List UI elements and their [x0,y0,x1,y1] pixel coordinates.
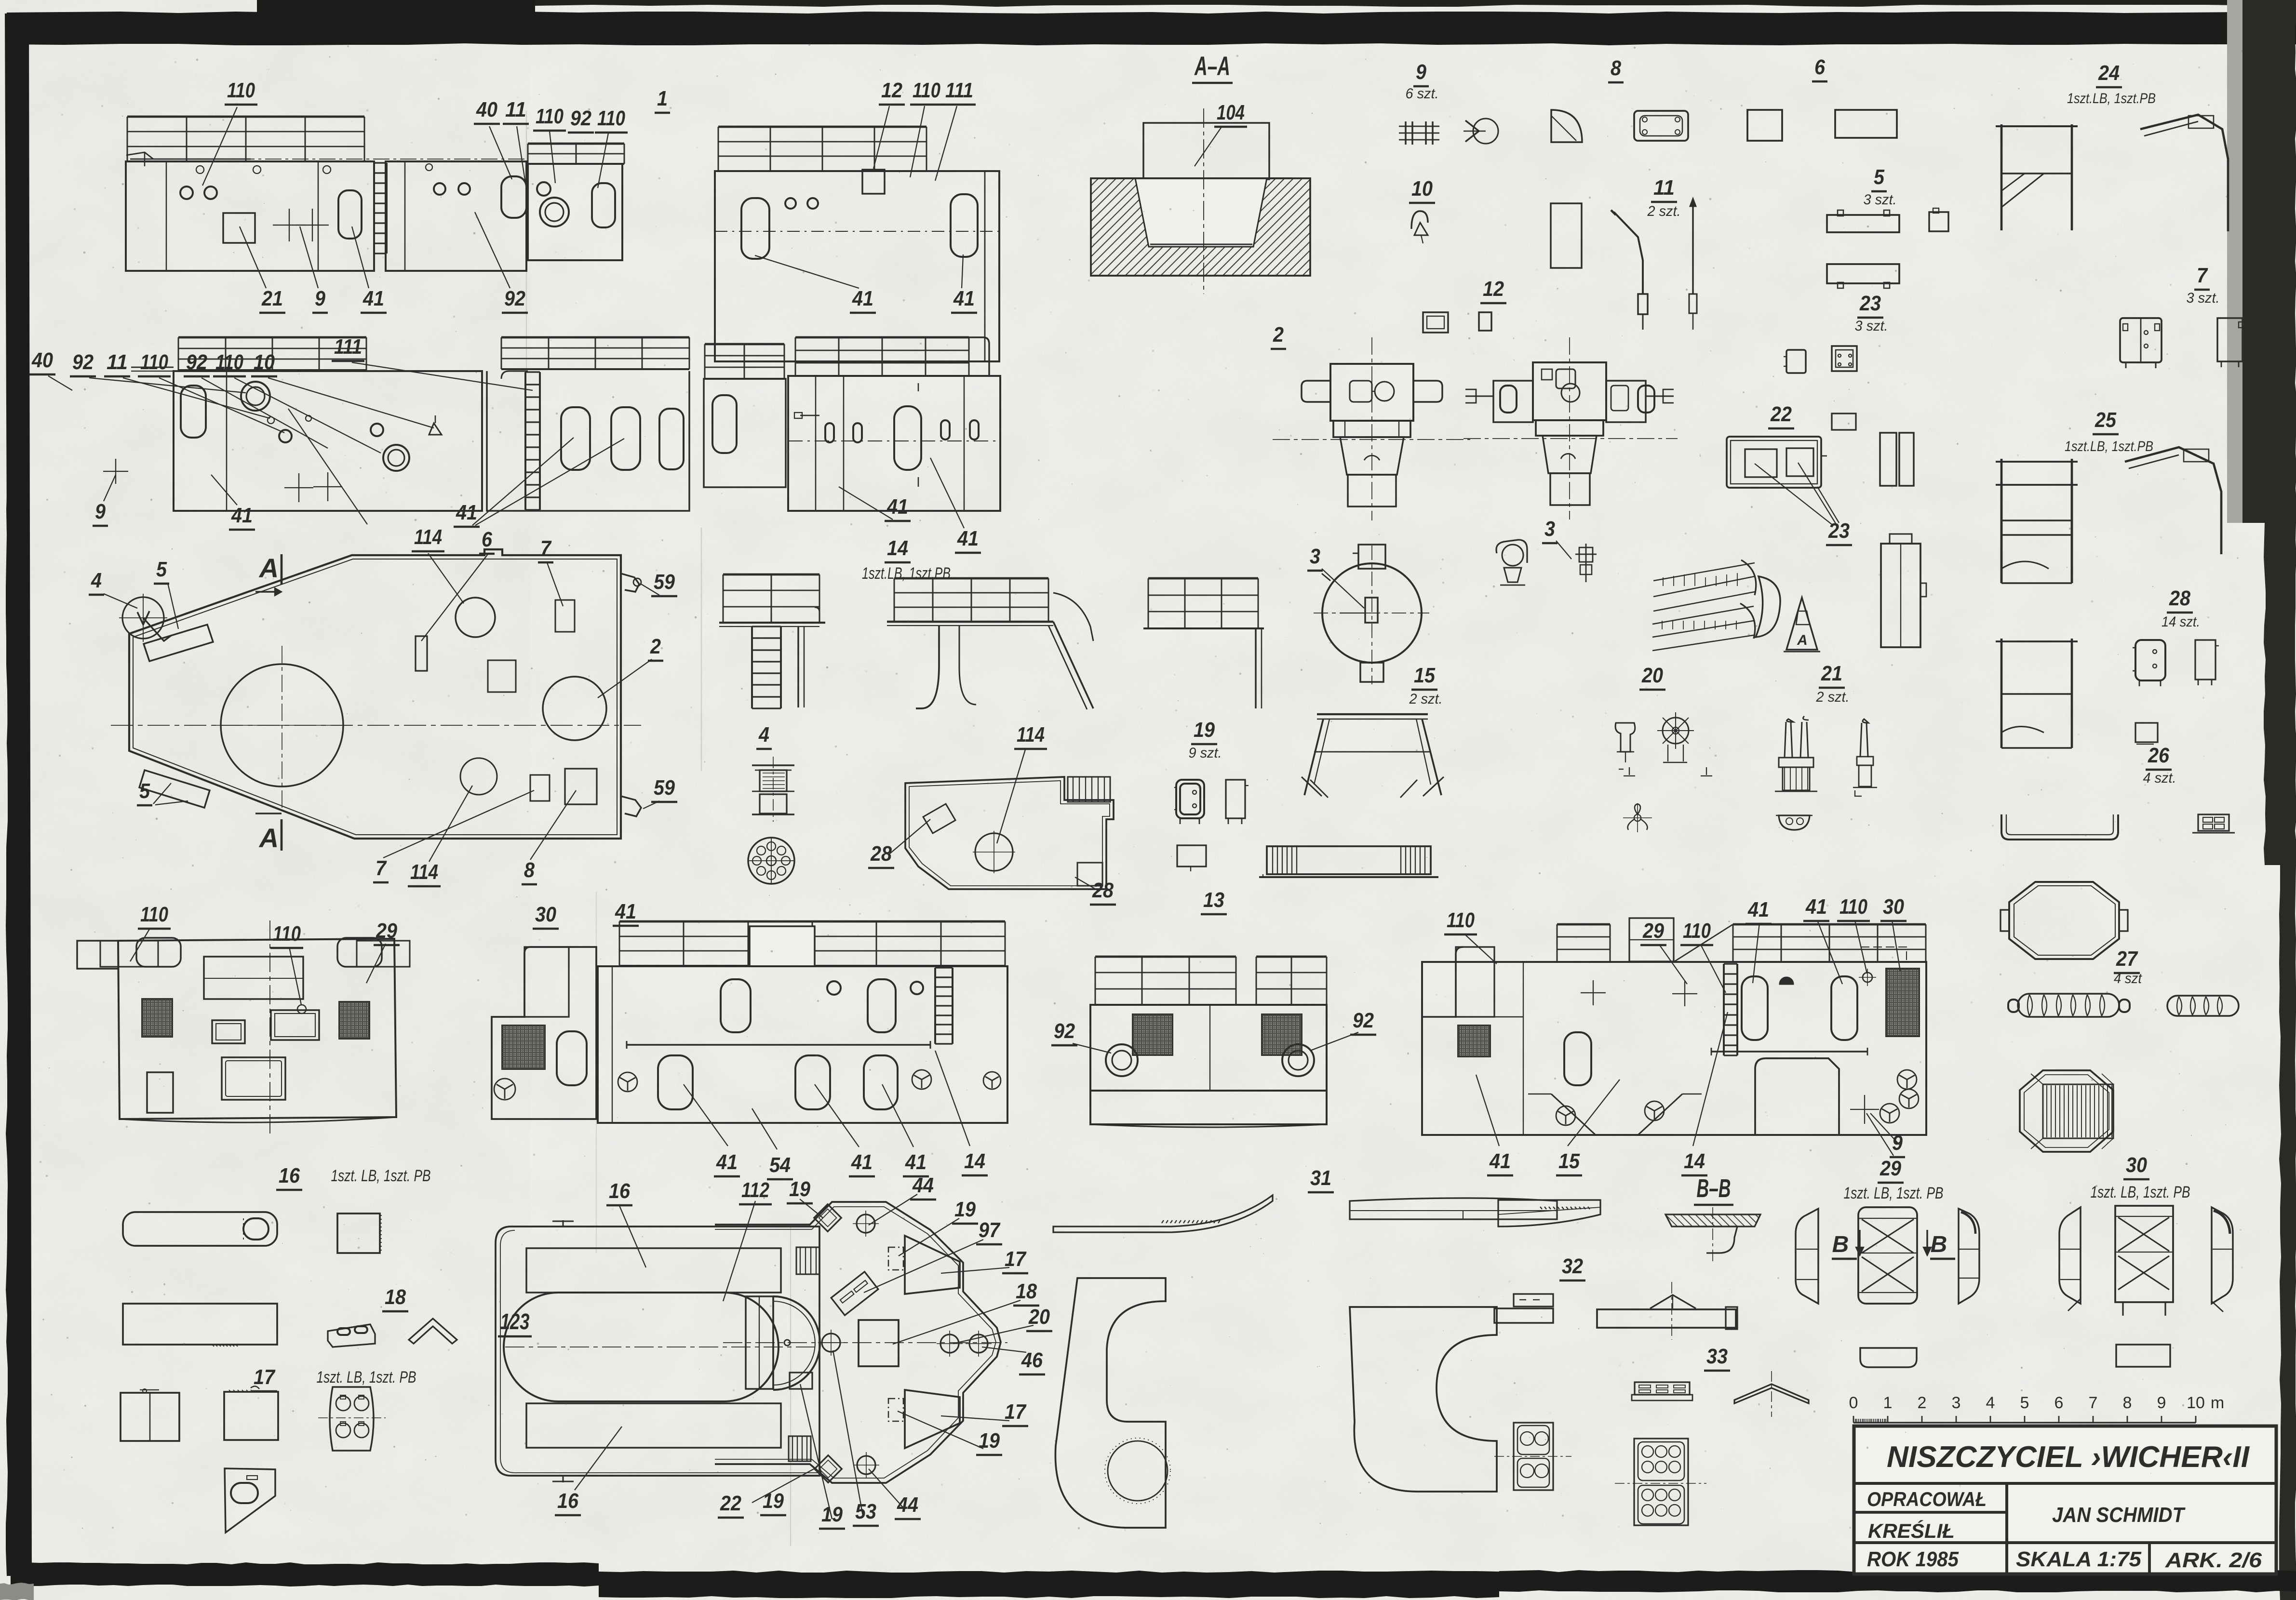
svg-text:110: 110 [913,79,940,102]
svg-text:A: A [258,823,279,853]
svg-text:6: 6 [482,528,492,551]
svg-text:A: A [1797,632,1808,648]
svg-text:8: 8 [1611,56,1621,80]
svg-text:24: 24 [2098,61,2120,85]
svg-text:7: 7 [2197,264,2208,287]
svg-text:59: 59 [654,776,675,800]
svg-text:1: 1 [1883,1394,1893,1412]
svg-text:41: 41 [852,287,873,310]
svg-text:41: 41 [905,1150,926,1174]
svg-text:NISZCZYCIEL ›WICHER‹II: NISZCZYCIEL ›WICHER‹II [1887,1440,2250,1474]
svg-text:9: 9 [315,287,325,310]
svg-text:1szt. LB, 1szt. PB: 1szt. LB, 1szt. PB [317,1368,416,1387]
svg-text:OPRACOWAŁ: OPRACOWAŁ [1867,1488,1987,1510]
svg-text:92: 92 [1353,1009,1374,1032]
svg-text:28: 28 [870,842,892,866]
svg-text:6: 6 [1814,55,1825,79]
svg-text:21: 21 [261,287,283,310]
svg-text:23: 23 [1859,292,1881,315]
svg-text:6: 6 [2054,1394,2064,1412]
svg-text:15: 15 [1414,664,1435,687]
svg-text:9 szt.: 9 szt. [1189,745,1222,761]
svg-text:11: 11 [505,98,526,121]
svg-text:31: 31 [1310,1166,1331,1190]
svg-text:20: 20 [1028,1305,1050,1329]
svg-text:16: 16 [609,1179,630,1203]
svg-text:41: 41 [231,504,253,527]
svg-text:92: 92 [1054,1019,1075,1043]
svg-text:19: 19 [954,1198,976,1221]
svg-text:114: 114 [410,860,438,884]
svg-text:1szt.LB, 1szt.PB: 1szt.LB, 1szt.PB [862,564,951,583]
svg-text:5: 5 [139,779,150,803]
svg-text:19: 19 [979,1429,1000,1453]
svg-text:1szt.LB, 1szt.PB: 1szt.LB, 1szt.PB [2065,439,2153,454]
svg-text:SKALA 1:75: SKALA 1:75 [2016,1547,2142,1571]
svg-text:17: 17 [1005,1400,1027,1424]
svg-text:21: 21 [1821,662,1842,685]
svg-text:9: 9 [1416,60,1426,84]
svg-text:m: m [2211,1394,2224,1412]
svg-text:33: 33 [1706,1345,1728,1368]
svg-text:3: 3 [1544,517,1555,541]
svg-text:19: 19 [821,1503,843,1526]
svg-text:12: 12 [1483,277,1504,301]
svg-text:111: 111 [945,79,973,102]
svg-text:18: 18 [385,1285,406,1309]
svg-text:8: 8 [2123,1394,2132,1412]
svg-text:110: 110 [1447,908,1475,932]
svg-text:97: 97 [979,1218,1001,1242]
svg-text:5: 5 [2020,1394,2029,1412]
svg-text:41: 41 [1805,895,1827,919]
svg-text:59: 59 [654,570,675,594]
svg-text:2 szt.: 2 szt. [1409,691,1443,707]
svg-text:110: 110 [273,922,301,946]
svg-text:41: 41 [363,287,384,310]
svg-text:111: 111 [334,335,362,359]
svg-text:14 szt.: 14 szt. [2162,614,2200,630]
svg-text:19: 19 [789,1177,810,1201]
svg-text:1szt. LB, 1szt. PB: 1szt. LB, 1szt. PB [1844,1184,1944,1202]
svg-text:10: 10 [254,350,275,374]
svg-text:30: 30 [2126,1153,2147,1177]
svg-text:7: 7 [2089,1394,2098,1412]
svg-text:ARK. 2/6: ARK. 2/6 [2165,1548,2262,1572]
svg-text:1szt. LB, 1szt. PB: 1szt. LB, 1szt. PB [2091,1183,2190,1201]
svg-text:40: 40 [476,98,497,121]
svg-text:3 szt.: 3 szt. [1864,192,1897,208]
svg-text:40: 40 [31,348,53,372]
svg-text:44: 44 [897,1493,918,1517]
svg-text:18: 18 [1016,1280,1037,1303]
svg-text:14: 14 [887,536,908,560]
svg-text:28: 28 [2169,587,2190,610]
svg-text:3: 3 [1310,545,1320,568]
svg-text:92: 92 [186,350,207,374]
svg-text:2 szt.: 2 szt. [1816,689,1850,705]
svg-text:7: 7 [376,856,387,880]
svg-text:3 szt.: 3 szt. [1855,318,1888,334]
svg-text:114: 114 [1017,723,1045,747]
svg-text:22: 22 [1770,402,1792,426]
svg-text:41: 41 [1747,898,1769,921]
svg-text:114: 114 [414,525,442,549]
svg-text:30: 30 [1883,895,1904,919]
svg-text:2: 2 [1918,1394,1927,1412]
svg-text:41: 41 [1489,1149,1511,1173]
svg-text:B–B: B–B [1697,1174,1731,1203]
svg-text:4: 4 [758,723,769,747]
svg-text:12: 12 [881,79,902,102]
svg-text:5: 5 [1874,165,1884,189]
svg-text:41: 41 [957,527,979,550]
svg-text:4: 4 [91,569,102,592]
svg-text:10: 10 [1411,177,1433,200]
svg-text:27: 27 [2116,947,2138,971]
svg-text:2: 2 [1273,323,1284,347]
svg-text:10: 10 [2187,1394,2205,1412]
svg-text:104: 104 [1217,101,1245,124]
svg-text:41: 41 [851,1150,873,1174]
svg-text:110: 110 [1839,895,1867,919]
svg-text:9: 9 [95,500,106,523]
svg-text:0: 0 [1849,1394,1858,1412]
svg-text:29: 29 [376,919,397,943]
svg-text:A–A: A–A [1194,51,1230,81]
svg-text:41: 41 [456,501,477,524]
svg-text:110: 110 [215,350,243,374]
svg-text:3: 3 [1952,1394,1961,1412]
svg-text:13: 13 [1203,888,1224,912]
svg-text:41: 41 [716,1150,738,1174]
svg-text:41: 41 [886,495,908,519]
svg-text:32: 32 [1562,1254,1583,1278]
svg-text:25: 25 [2095,408,2116,432]
svg-text:7: 7 [540,536,552,560]
svg-text:14: 14 [964,1149,985,1173]
svg-text:16: 16 [279,1164,300,1187]
svg-text:17: 17 [254,1365,276,1389]
svg-text:112: 112 [741,1178,769,1202]
svg-text:46: 46 [1021,1348,1043,1372]
svg-text:26: 26 [2148,744,2169,767]
svg-text:1szt. LB, 1szt. PB: 1szt. LB, 1szt. PB [331,1167,431,1185]
svg-text:110: 110 [140,903,168,926]
svg-text:17: 17 [1005,1247,1027,1271]
svg-text:1: 1 [657,87,668,110]
svg-text:11: 11 [107,350,128,374]
svg-text:5: 5 [156,558,167,581]
svg-text:9: 9 [2157,1394,2166,1412]
svg-text:19: 19 [763,1489,784,1513]
svg-text:15: 15 [1558,1149,1580,1173]
svg-text:ROK 1985: ROK 1985 [1867,1547,1959,1571]
svg-text:19: 19 [1194,718,1215,742]
svg-text:JAN SCHMIDT: JAN SCHMIDT [2052,1503,2186,1527]
svg-text:53: 53 [855,1500,876,1523]
svg-text:30: 30 [535,903,556,926]
svg-text:4 szt.: 4 szt. [2143,770,2176,786]
svg-text:14: 14 [1684,1149,1705,1173]
svg-text:110: 110 [1683,919,1711,943]
svg-text:8: 8 [524,858,535,882]
svg-text:92: 92 [504,287,525,310]
svg-text:20: 20 [1641,664,1663,687]
svg-text:9: 9 [1892,1131,1903,1155]
svg-text:110: 110 [597,107,625,130]
svg-text:3 szt.: 3 szt. [2187,290,2220,306]
svg-text:2 szt.: 2 szt. [1647,203,1681,219]
svg-text:110: 110 [536,105,564,128]
svg-text:4 szt: 4 szt [2114,971,2143,987]
svg-text:41: 41 [953,287,975,310]
svg-text:1szt.LB, 1szt.PB: 1szt.LB, 1szt.PB [2067,91,2156,107]
svg-text:B: B [1931,1232,1947,1257]
svg-text:54: 54 [769,1153,791,1177]
svg-text:2: 2 [650,635,661,658]
svg-text:KREŚLIŁ: KREŚLIŁ [1868,1520,1955,1542]
svg-text:4: 4 [1986,1394,1995,1412]
svg-text:110: 110 [140,350,168,374]
svg-text:29: 29 [1642,919,1664,943]
svg-text:22: 22 [720,1492,741,1515]
svg-text:6 szt.: 6 szt. [1406,86,1439,102]
svg-text:11: 11 [1653,176,1675,200]
svg-text:16: 16 [557,1489,578,1513]
svg-text:92: 92 [72,350,94,374]
svg-text:28: 28 [1092,879,1114,902]
svg-text:123: 123 [500,1309,530,1334]
svg-text:29: 29 [1880,1157,1901,1180]
svg-text:41: 41 [615,900,636,923]
svg-text:B: B [1832,1232,1849,1257]
svg-text:A: A [258,553,279,583]
svg-text:110: 110 [227,79,255,102]
svg-text:23: 23 [1828,519,1850,543]
